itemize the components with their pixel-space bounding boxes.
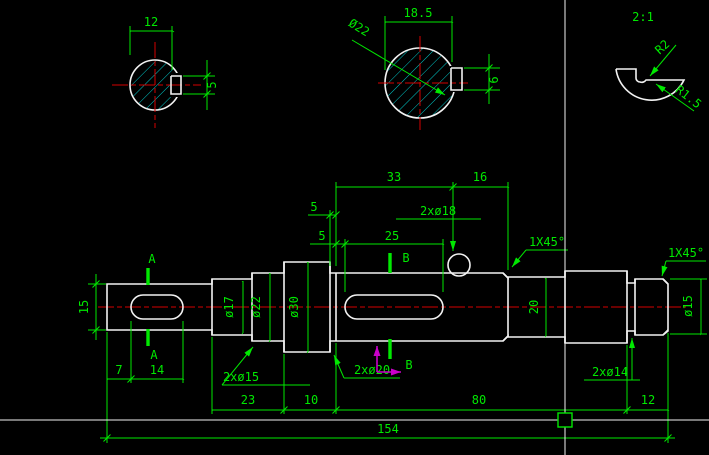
dim-dia15[interactable]: ø15 xyxy=(681,295,695,317)
cad-viewport[interactable]: 12 5 18.5 Ø22 6 2:1 R2 R1.5 xyxy=(0,0,709,455)
section-b-key-dim[interactable]: 6 xyxy=(487,76,501,83)
section-b-dia-label[interactable]: Ø22 xyxy=(346,16,372,39)
crosshair-cursor xyxy=(0,0,709,455)
dim-7[interactable]: 7 xyxy=(115,363,122,377)
dim-154[interactable]: 154 xyxy=(377,422,399,436)
dim-15[interactable]: 15 xyxy=(77,300,91,314)
dim-12[interactable]: 12 xyxy=(641,393,655,407)
detail-r2-label[interactable]: R2 xyxy=(652,37,672,57)
drawing-canvas[interactable]: 12 5 18.5 Ø22 6 2:1 R2 R1.5 xyxy=(0,0,709,455)
dim-dia20[interactable]: 20 xyxy=(527,300,541,314)
dim-dia30[interactable]: ø30 xyxy=(287,296,301,318)
dim-dia22[interactable]: ø22 xyxy=(249,296,263,318)
dim-2x18[interactable]: 2xø18 xyxy=(420,204,456,218)
detail-groove-profile[interactable] xyxy=(616,69,684,100)
section-letter-b-bottom[interactable]: B xyxy=(405,358,412,372)
dim-dia17[interactable]: ø17 xyxy=(222,296,236,318)
dim-80[interactable]: 80 xyxy=(472,393,486,407)
leader-chamfer-left[interactable] xyxy=(512,250,526,267)
dim-33[interactable]: 33 xyxy=(387,170,401,184)
dim-chamfer-right[interactable]: 1X45° xyxy=(668,246,704,260)
dim-2x15[interactable]: 2xø15 xyxy=(223,370,259,384)
section-b-keyway-erase xyxy=(450,66,469,92)
dim-5-groove[interactable]: 5 xyxy=(310,200,317,214)
detail-scale-label: 2:1 xyxy=(632,10,654,24)
dim-25[interactable]: 25 xyxy=(385,229,399,243)
section-b-width-dim[interactable]: 18.5 xyxy=(404,6,433,20)
section-a-key-dim[interactable]: 5 xyxy=(205,81,219,88)
section-letter-a-top[interactable]: A xyxy=(148,252,156,266)
dim-23[interactable]: 23 xyxy=(241,393,255,407)
dim-chamfer-left[interactable]: 1X45° xyxy=(529,235,565,249)
dim-10[interactable]: 10 xyxy=(304,393,318,407)
dim-5-key[interactable]: 5 xyxy=(318,229,325,243)
leader-chamfer-right[interactable] xyxy=(662,261,666,276)
dim-2x20[interactable]: 2xø20 xyxy=(354,363,390,377)
section-a-view[interactable]: 12 5 xyxy=(112,15,219,128)
section-letter-a-bottom[interactable]: A xyxy=(150,348,158,362)
pickbox xyxy=(558,413,572,427)
dim-14[interactable]: 14 xyxy=(150,363,164,377)
detail-view[interactable]: 2:1 R2 R1.5 xyxy=(616,10,704,111)
dim-2x14[interactable]: 2xø14 xyxy=(592,365,628,379)
section-letter-b-top[interactable]: B xyxy=(402,251,409,265)
section-b-view[interactable]: 18.5 Ø22 6 xyxy=(346,6,501,130)
dim-16[interactable]: 16 xyxy=(473,170,487,184)
section-a-width-dim[interactable]: 12 xyxy=(144,15,158,29)
shaft-front-view[interactable] xyxy=(98,254,686,352)
